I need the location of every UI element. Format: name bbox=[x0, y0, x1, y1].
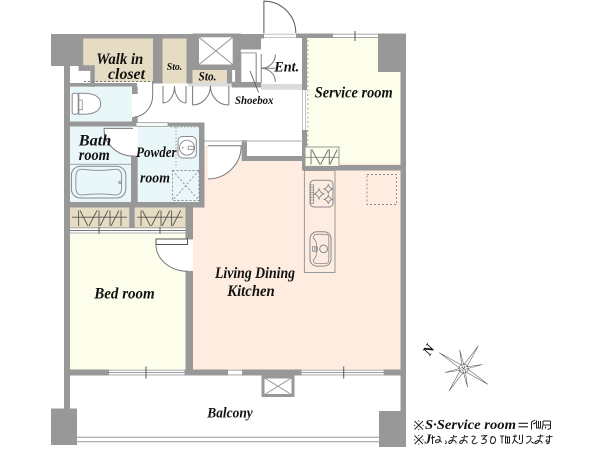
svg-text:room: room bbox=[79, 147, 110, 164]
svg-text:Ent.: Ent. bbox=[273, 60, 299, 76]
svg-text:closet: closet bbox=[108, 66, 146, 83]
svg-text:J: J bbox=[424, 432, 433, 447]
svg-text:Balcony: Balcony bbox=[206, 406, 253, 422]
svg-text:Powder: Powder bbox=[136, 145, 177, 161]
svg-text:Sto.: Sto. bbox=[167, 61, 183, 73]
svg-text:Service room: Service room bbox=[315, 85, 393, 102]
svg-text:Shoebox: Shoebox bbox=[235, 95, 274, 107]
svg-text:Living Dining: Living Dining bbox=[214, 265, 295, 282]
svg-text:Kitchen: Kitchen bbox=[226, 283, 275, 300]
svg-text:S·Service room: S·Service room bbox=[425, 417, 516, 432]
svg-text:Sto.: Sto. bbox=[199, 70, 217, 84]
svg-text:Bed room: Bed room bbox=[93, 286, 154, 303]
svg-text:room: room bbox=[140, 171, 170, 187]
